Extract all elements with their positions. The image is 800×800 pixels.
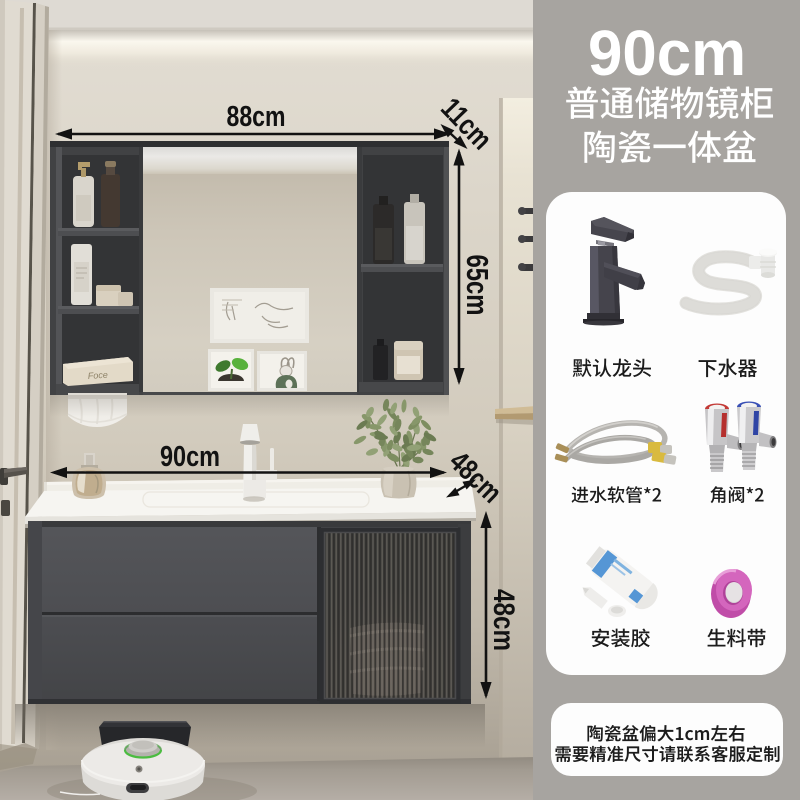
svg-text:48cm: 48cm bbox=[487, 589, 520, 651]
svg-text:90cm: 90cm bbox=[160, 441, 220, 473]
svg-text:90cm: 90cm bbox=[588, 17, 746, 89]
svg-text:88cm: 88cm bbox=[227, 101, 286, 133]
svg-text:Foce: Foce bbox=[87, 370, 108, 381]
svg-text:65cm: 65cm bbox=[460, 255, 495, 316]
